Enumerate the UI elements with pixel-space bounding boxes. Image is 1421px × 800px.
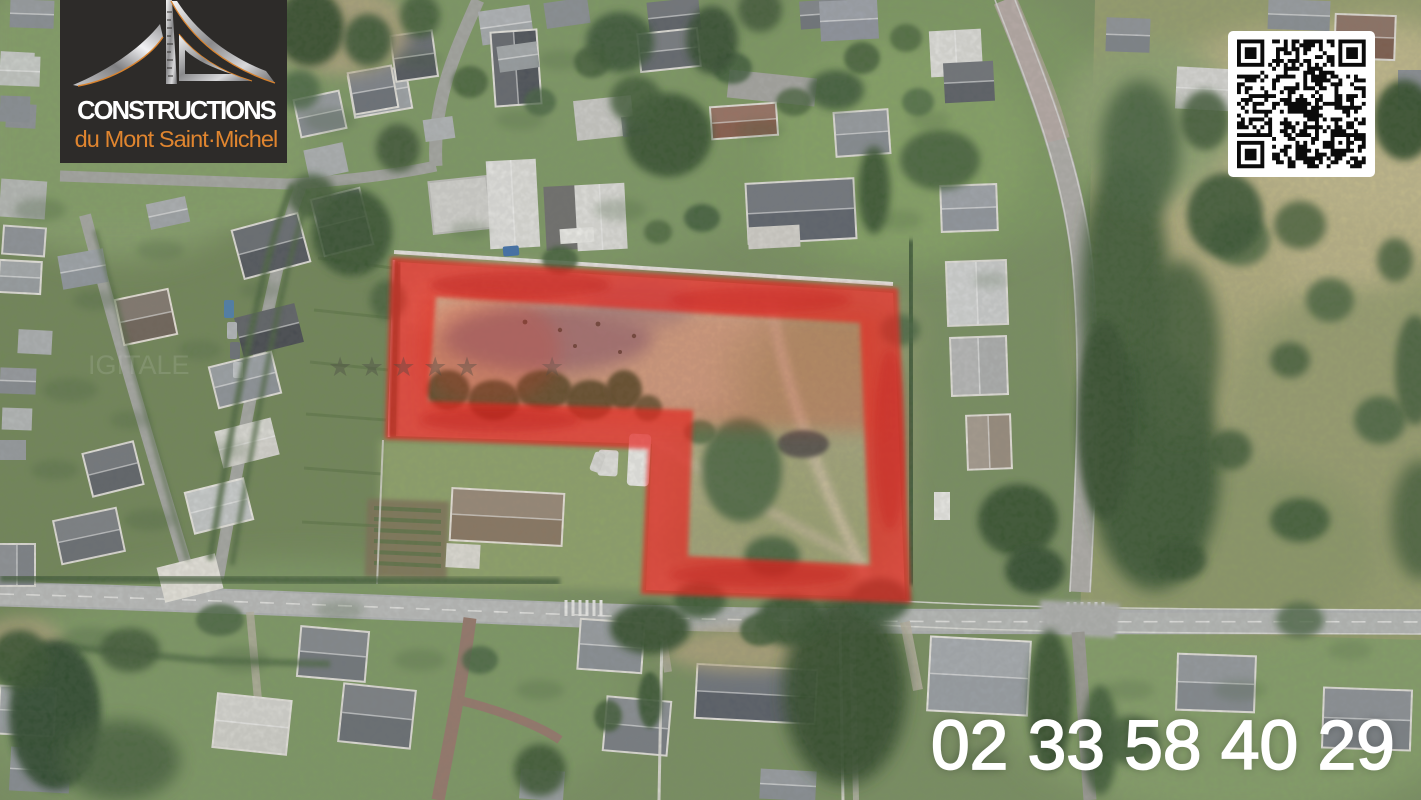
svg-text:IGITALE: IGITALE xyxy=(88,350,190,380)
svg-text:CONSTRUCTIONS: CONSTRUCTIONS xyxy=(77,97,277,125)
svg-text:★ ★ ★ ★ ★: ★ ★ ★ ★ ★ xyxy=(328,352,479,382)
svg-text:du Mont Saint·Michel: du Mont Saint·Michel xyxy=(75,126,278,152)
svg-text:★: ★ xyxy=(540,352,564,382)
